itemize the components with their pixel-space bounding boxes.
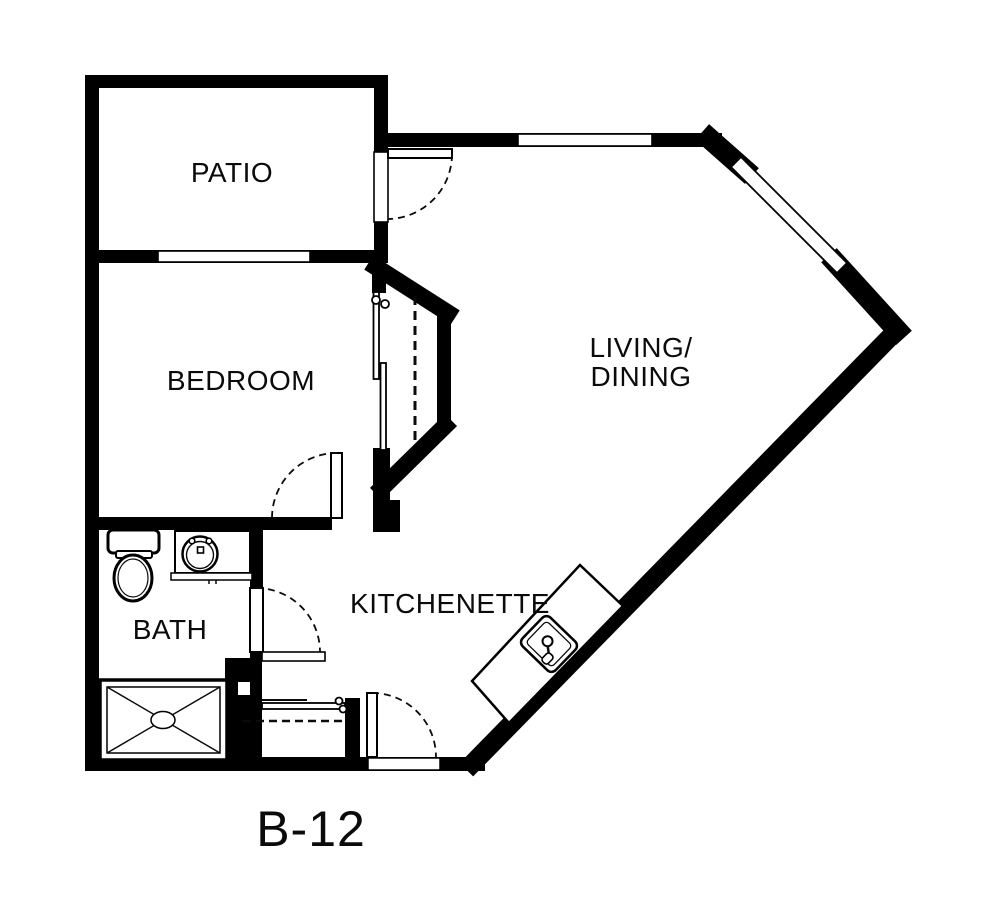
room-label-bedroom: BEDROOM <box>167 365 315 397</box>
bath-wall-notch <box>238 682 250 695</box>
room-label-kitchenette: KITCHENETTE <box>350 588 550 620</box>
floor-plan: PATIO BEDROOM LIVING/ DINING KITCHENETTE… <box>0 0 999 922</box>
bathroom-faucet-spout <box>198 547 204 553</box>
wall-se-diagonal <box>473 330 897 763</box>
shower-drain <box>151 712 175 729</box>
living-diagonal-window <box>731 157 847 273</box>
bathroom-faucet-handle-right <box>206 538 212 544</box>
wall-entry-closet-right <box>345 698 360 757</box>
wall-left <box>85 75 99 771</box>
bath-door-swing-arc <box>256 588 320 652</box>
bath-door <box>250 588 325 661</box>
wall-bay-right <box>437 308 451 429</box>
bedroom-closet <box>372 292 415 450</box>
bedroom-closet-door-pull-1 <box>372 296 380 304</box>
room-label-bath: BATH <box>133 614 208 646</box>
bath-door-open-leaf <box>262 652 325 661</box>
patio-bedroom-window <box>158 251 310 262</box>
room-label-living-dining: LIVING/ DINING <box>589 333 692 391</box>
bath-door-leaf <box>250 588 263 652</box>
bedroom-closet-door-pull-2 <box>381 300 389 308</box>
entry-closet-door-pull-2 <box>340 706 347 713</box>
patio-door-leaf <box>388 149 452 158</box>
patio-door-swing-arc <box>388 154 452 219</box>
room-label-patio: PATIO <box>191 157 273 189</box>
room-label-living-line2: DINING <box>589 362 692 391</box>
wall-bath-closet-column <box>225 658 262 757</box>
entry-door <box>367 693 436 757</box>
entry-threshold <box>368 758 440 770</box>
patio-door <box>374 149 452 222</box>
entry-door-leaf <box>367 693 377 757</box>
wall-bedroom-south <box>85 517 332 530</box>
living-top-window <box>518 134 652 146</box>
bedroom-door-leaf <box>331 453 342 518</box>
bedroom-door-swing-arc <box>272 453 337 518</box>
entry-closet-door-track <box>262 703 345 709</box>
room-label-living-line1: LIVING/ <box>589 333 692 362</box>
wall-ne-diagonal-b <box>836 263 897 330</box>
bathroom-sink-vanity <box>171 531 252 584</box>
unit-label: B-12 <box>256 800 366 858</box>
entry-door-swing-arc <box>372 693 436 757</box>
shower <box>100 680 227 760</box>
wall-patio-top <box>85 75 388 88</box>
bedroom-closet-slider-panel-2 <box>381 363 387 450</box>
bedroom-closet-slider-panel-1 <box>374 292 380 379</box>
patio-door-jamb <box>374 152 388 222</box>
bedroom-door <box>272 453 342 518</box>
entry-closet-door-pull-1 <box>336 698 343 705</box>
toilet-bowl <box>114 555 152 601</box>
bathroom-faucet-handle-left <box>189 538 195 544</box>
toilet <box>108 530 159 601</box>
floor-plan-drawing <box>0 0 999 922</box>
vanity-counter-lip <box>171 573 252 580</box>
wall-hall-junction-block <box>373 500 400 532</box>
wall-patio-right-lower <box>374 222 388 263</box>
toilet-tank <box>108 530 159 553</box>
